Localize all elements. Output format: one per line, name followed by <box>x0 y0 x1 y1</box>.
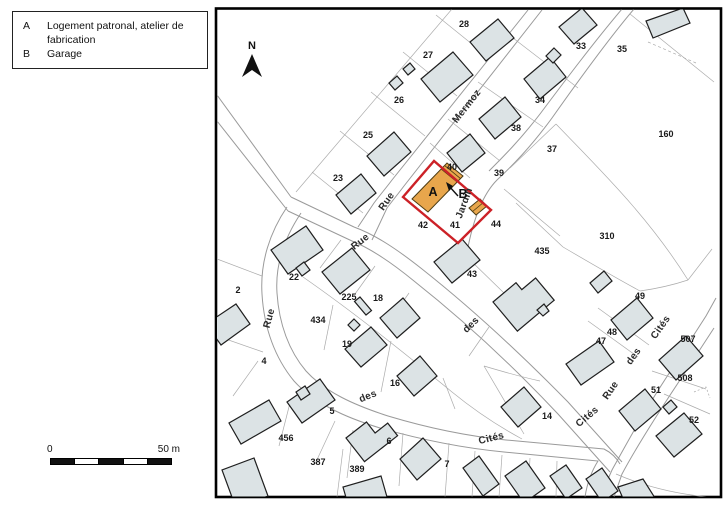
parcel-label: 456 <box>278 433 293 443</box>
parcel-label: 4 <box>261 356 266 366</box>
parcel-label: 19 <box>342 339 352 349</box>
parcel-label: 33 <box>576 41 586 51</box>
parcel-label: 37 <box>547 144 557 154</box>
parcel-label: 7 <box>444 459 449 469</box>
parcel-label: 160 <box>658 129 673 139</box>
parcel-label: 39 <box>494 168 504 178</box>
parcel-label: 5 <box>329 406 334 416</box>
parcel-label: 27 <box>423 50 433 60</box>
parcel-label: 14 <box>542 411 552 421</box>
parcel-label: 23 <box>333 173 343 183</box>
parcel-label: 387 <box>310 457 325 467</box>
parcel-label: 6 <box>386 436 391 446</box>
parcel-label: 43 <box>467 269 477 279</box>
parcel-label: 47 <box>596 336 606 346</box>
parcel-label: 44 <box>491 219 501 229</box>
parcel-label: 34 <box>535 95 545 105</box>
parcel-label: 225 <box>341 292 356 302</box>
parcel-label: 25 <box>363 130 373 140</box>
parcel-label: 52 <box>689 415 699 425</box>
parcel-label: 18 <box>373 293 383 303</box>
parcel-label: 42 <box>418 220 428 230</box>
cadastral-plan-page: A Logement patronal, atelier de fabricat… <box>0 0 728 515</box>
parcel-label: 26 <box>394 95 404 105</box>
parcel-label: 41 <box>450 220 460 230</box>
parcel-label: 310 <box>599 231 614 241</box>
north-label: N <box>248 40 256 52</box>
map-canvas: N <box>0 0 728 515</box>
parcel-label: 507 <box>680 334 695 344</box>
parcel-label: 40 <box>447 162 457 172</box>
parcel-label: 51 <box>651 385 661 395</box>
parcel-label: 35 <box>617 44 627 54</box>
parcel-label: 28 <box>459 19 469 29</box>
parcel-label: 508 <box>677 373 692 383</box>
highlight-label: B <box>458 187 467 201</box>
highlight-label: A <box>428 185 437 199</box>
parcel-label: 435 <box>534 246 549 256</box>
parcel-label: 389 <box>349 464 364 474</box>
parcel-label: 16 <box>390 378 400 388</box>
parcel-label: 2 <box>235 285 240 295</box>
parcel-label: 434 <box>310 315 325 325</box>
parcel-label: 49 <box>635 291 645 301</box>
parcel-label: 48 <box>607 327 617 337</box>
parcel-label: 22 <box>289 272 299 282</box>
parcel-label: 38 <box>511 123 521 133</box>
